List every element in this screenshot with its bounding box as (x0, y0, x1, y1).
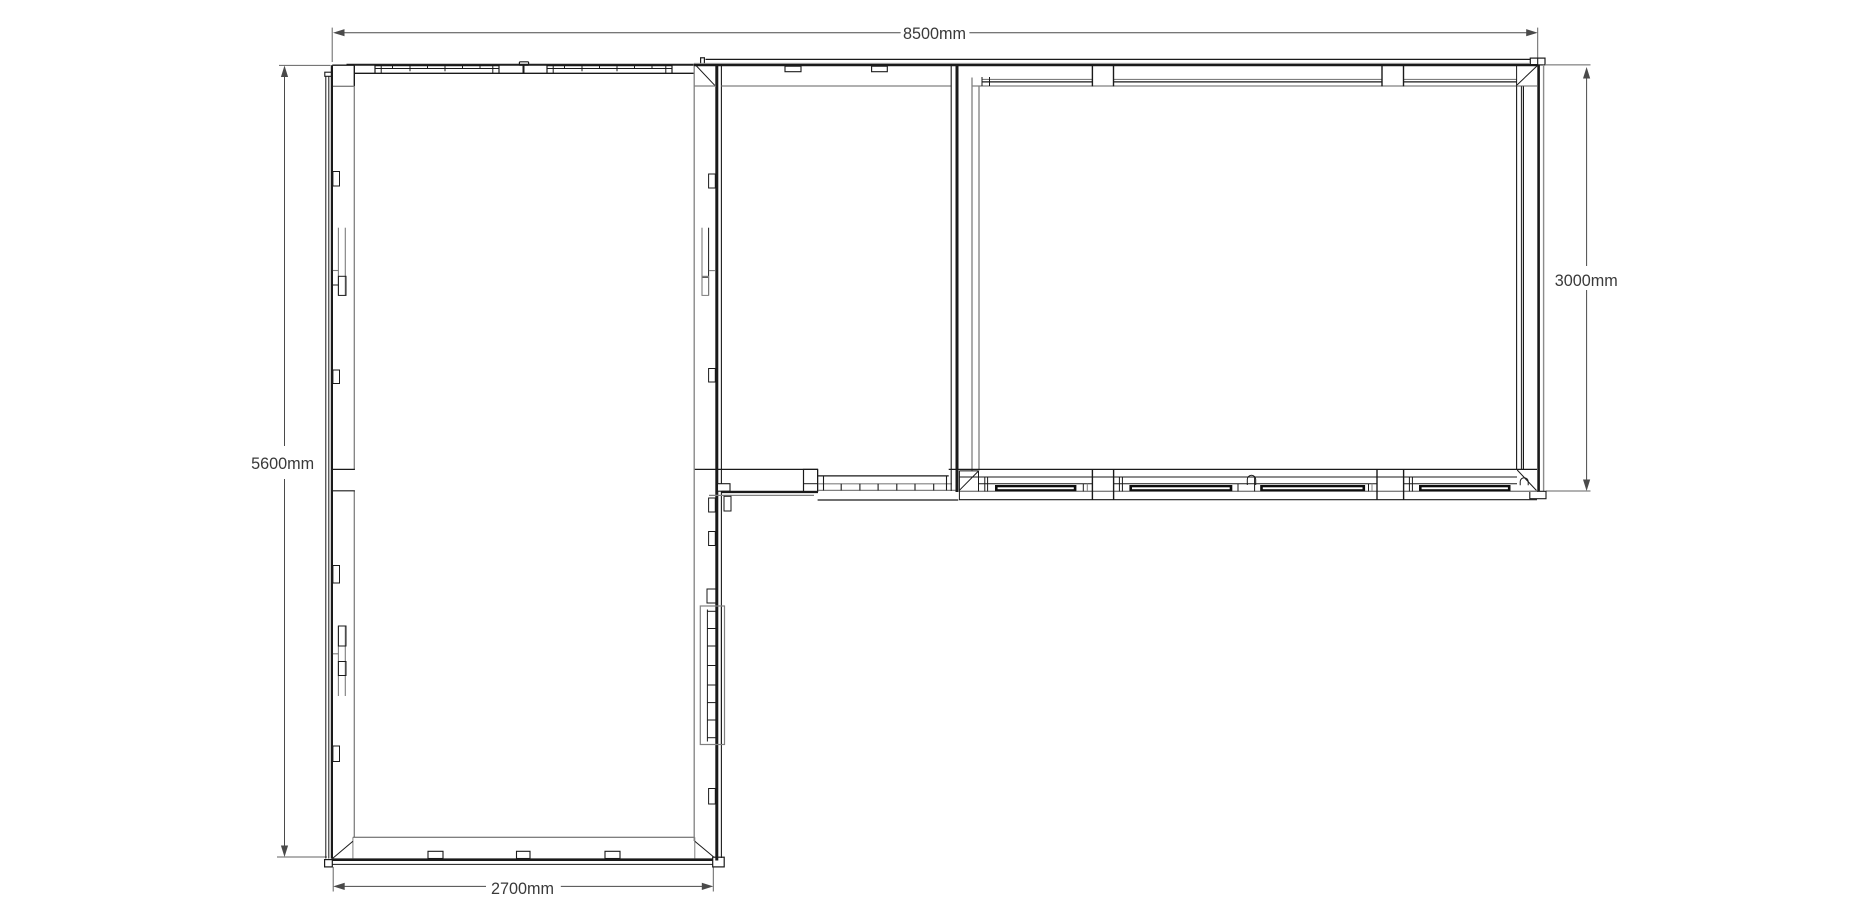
svg-text:8500mm: 8500mm (903, 25, 966, 43)
svg-text:5600mm: 5600mm (251, 455, 314, 473)
svg-text:2700mm: 2700mm (491, 880, 554, 898)
svg-text:3000mm: 3000mm (1555, 272, 1618, 290)
